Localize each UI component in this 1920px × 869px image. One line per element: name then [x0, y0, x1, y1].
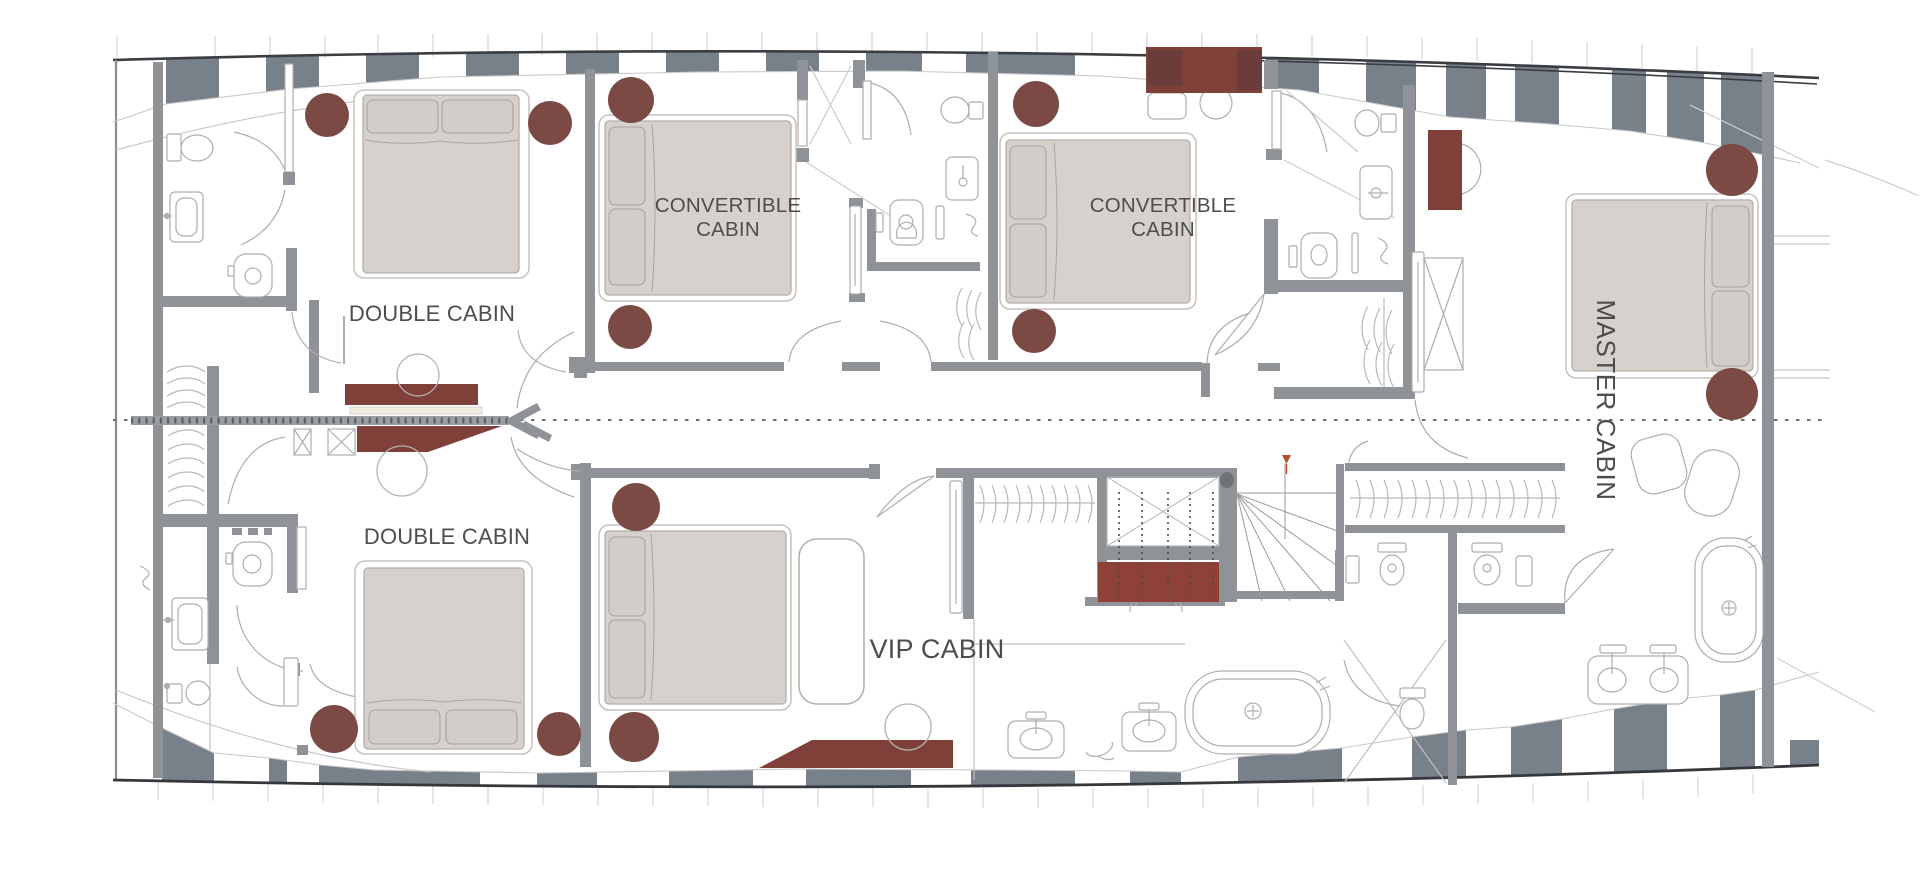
svg-text:CONVERTIBLE: CONVERTIBLE	[655, 194, 802, 217]
svg-text:DOUBLE CABIN: DOUBLE CABIN	[349, 301, 515, 326]
svg-text:MASTER CABIN: MASTER CABIN	[1591, 299, 1621, 500]
svg-text:VIP CABIN: VIP CABIN	[870, 634, 1005, 664]
svg-text:CONVERTIBLE: CONVERTIBLE	[1090, 194, 1237, 217]
svg-text:DOUBLE CABIN: DOUBLE CABIN	[364, 524, 530, 549]
svg-text:CABIN: CABIN	[696, 218, 760, 241]
svg-text:CABIN: CABIN	[1131, 218, 1195, 241]
